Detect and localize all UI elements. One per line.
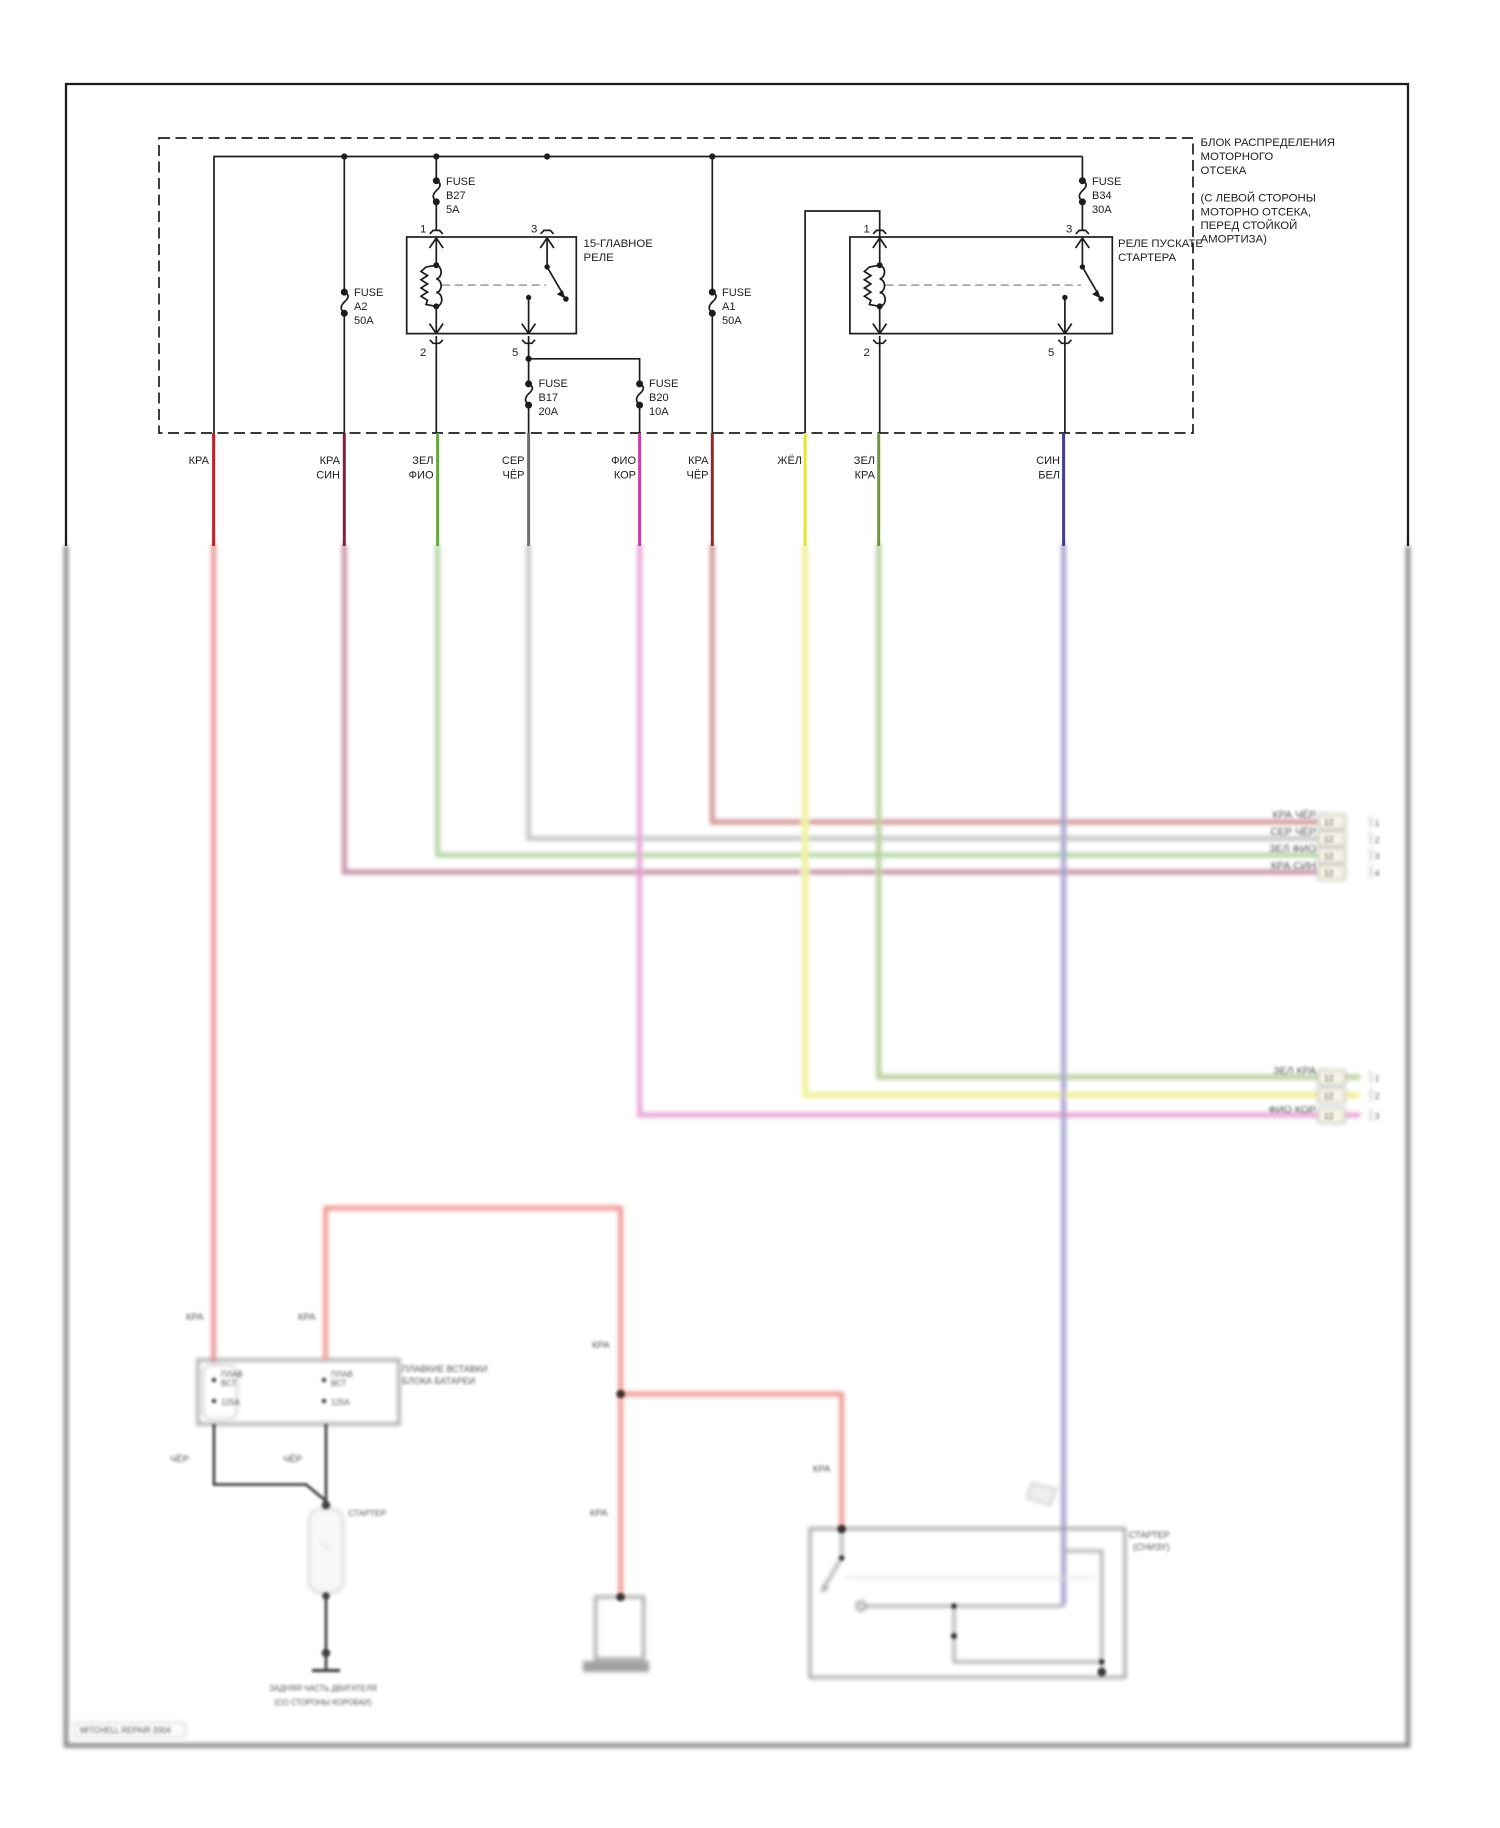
svg-text:FUSE: FUSE	[649, 378, 678, 390]
svg-text:FUSE: FUSE	[446, 176, 475, 188]
svg-text:ЗЕЛ КРА: ЗЕЛ КРА	[1273, 1065, 1316, 1077]
svg-text:3: 3	[531, 224, 537, 236]
svg-text:ЧЁР: ЧЁР	[502, 470, 524, 482]
svg-text:1: 1	[1375, 1074, 1380, 1083]
svg-text:10A: 10A	[649, 406, 669, 418]
svg-text:12: 12	[1324, 834, 1334, 844]
svg-text:КОР: КОР	[614, 470, 636, 482]
svg-text:СЕР ЧЁР: СЕР ЧЁР	[1270, 826, 1316, 838]
svg-text:МОТОРНОГО: МОТОРНОГО	[1201, 151, 1274, 163]
svg-text:КРА: КРА	[298, 1312, 316, 1323]
svg-text:2: 2	[864, 347, 870, 359]
svg-text:КРА: КРА	[813, 1464, 831, 1475]
svg-text:5: 5	[1048, 347, 1054, 359]
svg-text:ЗЕЛ: ЗЕЛ	[854, 455, 875, 467]
svg-text:B34: B34	[1092, 190, 1112, 202]
svg-text:(СНИЗУ): (СНИЗУ)	[1133, 1542, 1170, 1552]
svg-text:КРА: КРА	[186, 1312, 204, 1323]
svg-text:125А: 125А	[331, 1398, 350, 1407]
svg-text:КРА: КРА	[320, 455, 341, 467]
svg-text:КРА СИН: КРА СИН	[1271, 860, 1316, 872]
svg-text:20A: 20A	[539, 406, 559, 418]
svg-text:12: 12	[1324, 817, 1334, 827]
svg-text:РЕЛЕ: РЕЛЕ	[584, 252, 615, 264]
svg-text:3: 3	[1375, 852, 1380, 861]
svg-text:ЧЁР: ЧЁР	[283, 1454, 302, 1465]
svg-text:ПЛАВ: ПЛАВ	[221, 1370, 243, 1379]
svg-text:50A: 50A	[354, 315, 374, 327]
svg-text:FUSE: FUSE	[1092, 176, 1121, 188]
svg-text:МОТОРНО ОТСЕКА,: МОТОРНО ОТСЕКА,	[1201, 207, 1312, 219]
svg-text:A2: A2	[354, 301, 367, 313]
svg-text:2: 2	[1375, 1092, 1380, 1101]
svg-text:3: 3	[1066, 224, 1072, 236]
svg-text:2: 2	[420, 347, 426, 359]
svg-text:A1: A1	[722, 301, 735, 313]
svg-text:ЧЁР: ЧЁР	[686, 470, 708, 482]
svg-text:КРА: КРА	[590, 1508, 608, 1519]
svg-text:FUSE: FUSE	[539, 378, 568, 390]
svg-text:ФИО: ФИО	[409, 470, 434, 482]
svg-text:FUSE: FUSE	[722, 287, 751, 299]
svg-text:АМОРТИЗА): АМОРТИЗА)	[1201, 234, 1268, 246]
svg-text:СТАРТЕР: СТАРТЕР	[1129, 1530, 1170, 1540]
svg-text:СИН: СИН	[316, 470, 340, 482]
svg-text:MITCHELL REPAIR 2004: MITCHELL REPAIR 2004	[80, 1726, 171, 1735]
svg-text:СТАРТЕР: СТАРТЕР	[348, 1508, 387, 1518]
svg-text:СТАРТЕРА: СТАРТЕРА	[1118, 252, 1176, 264]
svg-text:12: 12	[1324, 1111, 1334, 1121]
svg-text:ПЕРЕД СТОЙКОЙ: ПЕРЕД СТОЙКОЙ	[1201, 219, 1298, 232]
svg-text:12: 12	[1324, 1091, 1334, 1101]
svg-text:B20: B20	[649, 392, 669, 404]
svg-text:КРА: КРА	[189, 455, 210, 467]
svg-text:(С ЛЕВОЙ СТОРОНЫ: (С ЛЕВОЙ СТОРОНЫ	[1201, 192, 1316, 205]
svg-text:12: 12	[1324, 851, 1334, 861]
svg-text:КРА ЧЁР: КРА ЧЁР	[1273, 809, 1316, 821]
svg-text:ФИО КОР: ФИО КОР	[1268, 1104, 1316, 1116]
svg-text:B27: B27	[446, 190, 466, 202]
svg-text:12: 12	[1324, 1073, 1334, 1083]
svg-text:ЗЕЛ: ЗЕЛ	[412, 455, 433, 467]
svg-text:ВСТ: ВСТ	[331, 1379, 347, 1388]
svg-text:СЕР: СЕР	[502, 455, 525, 467]
svg-text:БЛОК РАСПРЕДЕЛЕНИЯ: БЛОК РАСПРЕДЕЛЕНИЯ	[1201, 137, 1335, 149]
svg-text:5A: 5A	[446, 204, 460, 216]
svg-text:30A: 30A	[1092, 204, 1112, 216]
svg-text:КРА: КРА	[855, 470, 876, 482]
svg-text:2: 2	[1375, 836, 1380, 845]
svg-text:15-ГЛАВНОЕ: 15-ГЛАВНОЕ	[584, 238, 654, 250]
svg-text:ЧЁР: ЧЁР	[170, 1454, 189, 1465]
svg-text:ВСТ: ВСТ	[221, 1379, 237, 1388]
svg-text:1: 1	[420, 224, 426, 236]
svg-text:(СО СТОРОНЫ КОРОБКИ): (СО СТОРОНЫ КОРОБКИ)	[274, 1698, 372, 1707]
svg-text:ЗЕЛ ФИО: ЗЕЛ ФИО	[1269, 843, 1316, 855]
svg-text:12: 12	[1324, 868, 1334, 878]
svg-text:КРА: КРА	[688, 455, 709, 467]
svg-text:БЕЛ: БЕЛ	[1038, 470, 1060, 482]
svg-text:50A: 50A	[722, 315, 742, 327]
svg-text:FUSE: FUSE	[354, 287, 383, 299]
svg-text:ЗАДНЯЯ ЧАСТЬ ДВИГАТЕЛЯ: ЗАДНЯЯ ЧАСТЬ ДВИГАТЕЛЯ	[269, 1684, 376, 1693]
svg-text:ПЛАВ: ПЛАВ	[331, 1370, 353, 1379]
svg-text:ПЛАВКИЕ ВСТАВКИ: ПЛАВКИЕ ВСТАВКИ	[402, 1364, 487, 1374]
svg-text:3: 3	[1375, 1112, 1380, 1121]
svg-text:КРА: КРА	[592, 1340, 610, 1351]
svg-text:1: 1	[1375, 819, 1380, 828]
svg-text:ЖЁЛ: ЖЁЛ	[777, 455, 802, 467]
svg-text:4: 4	[1375, 869, 1380, 878]
svg-text:БЛОКА БАТАРЕИ: БЛОКА БАТАРЕИ	[402, 1376, 475, 1386]
svg-text:125А: 125А	[221, 1398, 240, 1407]
svg-text:ФИО: ФИО	[611, 455, 636, 467]
svg-text:РЕЛЕ ПУСКАТЕ: РЕЛЕ ПУСКАТЕ	[1118, 238, 1203, 250]
svg-text:5: 5	[512, 347, 518, 359]
svg-text:СИН: СИН	[1036, 455, 1060, 467]
svg-text:B17: B17	[539, 392, 559, 404]
svg-text:ОТСЕКА: ОТСЕКА	[1201, 165, 1247, 177]
svg-text:1: 1	[864, 224, 870, 236]
